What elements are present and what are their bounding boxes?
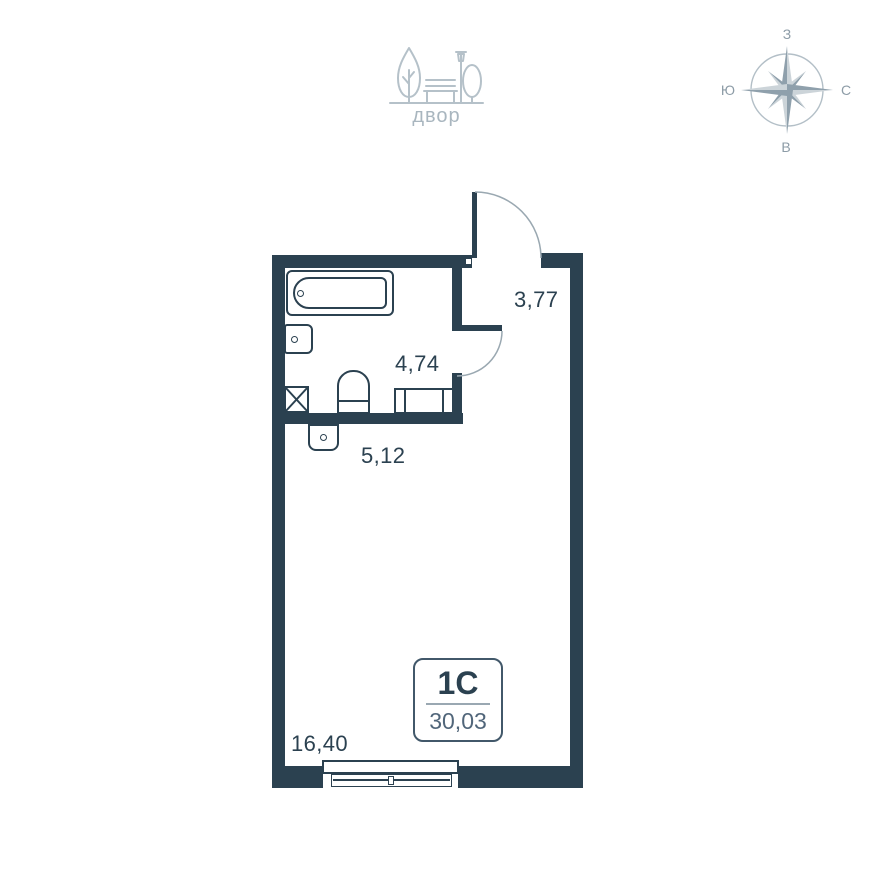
apartment-stamp: 1С 30,03 [413, 658, 503, 742]
washer-niche-divider [442, 390, 444, 412]
wall-bathroom-right-upper [452, 268, 462, 331]
bathtub-inner [293, 277, 387, 309]
toilet-cistern-line [339, 400, 368, 402]
bathroom-sink [284, 324, 313, 354]
window-sill [322, 760, 459, 774]
vent-shaft-cross-icon [284, 386, 309, 413]
stamp-divider [426, 703, 490, 705]
compass-label-south: Ю [721, 82, 735, 98]
apartment-total-area: 30,03 [429, 709, 487, 733]
bathroom-sink-drain [291, 336, 298, 343]
bathroom-door-arc [454, 328, 506, 380]
room-area-label-living: 16,40 [291, 731, 348, 757]
compass-label-north: С [841, 82, 851, 98]
compass-label-east: В [781, 139, 790, 155]
courtyard-icon [388, 40, 485, 106]
washer-niche [394, 388, 454, 414]
room-area-label-bathroom: 4,74 [395, 351, 439, 377]
bathtub-drain [297, 290, 304, 297]
room-area-label-hallway: 3,77 [514, 287, 558, 313]
wall-bottom-right [458, 766, 583, 788]
wall-bottom-left [272, 766, 323, 788]
entry-door-arc [470, 188, 546, 263]
wall-top-left [272, 255, 472, 268]
toilet [337, 370, 370, 414]
wall-right [570, 253, 583, 788]
wall-bathroom-bottom [272, 413, 463, 424]
kitchen-sink-drain [320, 434, 327, 441]
tree-icon [463, 65, 481, 97]
bench-icon [424, 80, 457, 103]
compass-cardinal-rays [741, 46, 833, 134]
floor-plan-page: двор З Ю С В [0, 0, 880, 880]
room-area-label-kitchen: 5,12 [361, 443, 405, 469]
window-mullion [388, 776, 394, 785]
compass-rose: З Ю С В [716, 22, 858, 158]
apartment-type: 1С [438, 667, 479, 701]
washer-niche-divider [404, 390, 406, 412]
lamp-icon [456, 52, 466, 103]
courtyard-label: двор [388, 105, 485, 128]
compass-label-west: З [783, 26, 791, 42]
